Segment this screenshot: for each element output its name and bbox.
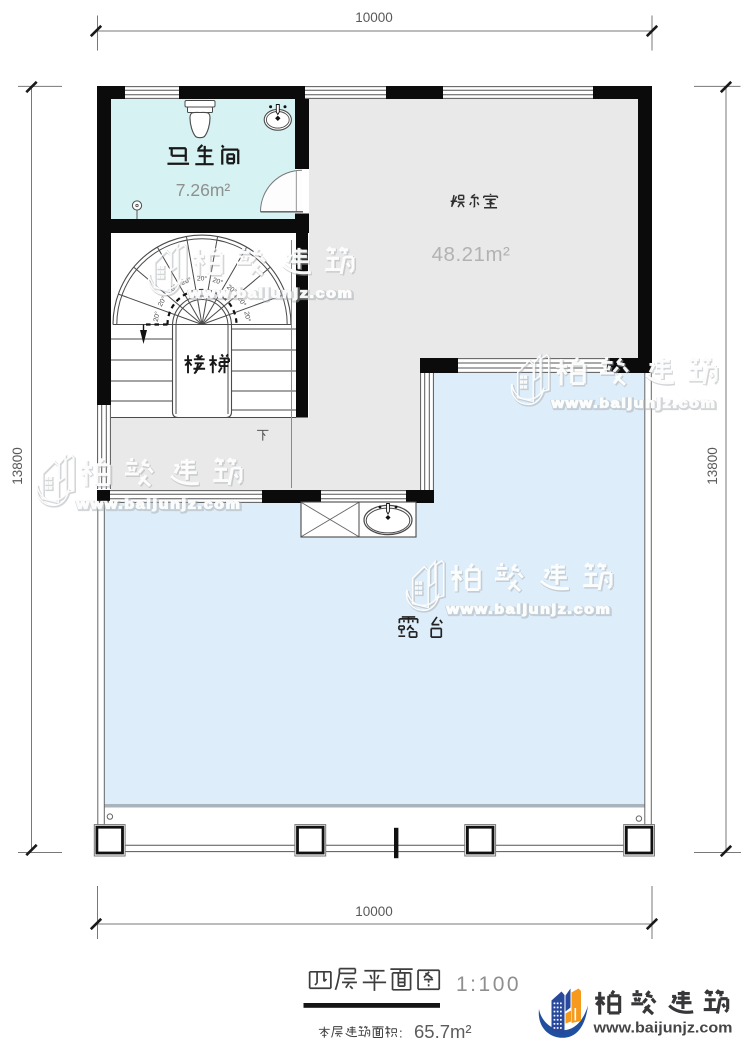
svg-text:www.baijunjz.com: www.baijunjz.com xyxy=(75,497,241,511)
svg-text:10000: 10000 xyxy=(355,10,393,25)
svg-text:www.baijunjz.com: www.baijunjz.com xyxy=(550,396,716,410)
svg-text:65.7m²: 65.7m² xyxy=(414,1021,472,1042)
svg-text:13800: 13800 xyxy=(705,447,720,485)
svg-text::: : xyxy=(399,1026,403,1041)
svg-text:48.21m²: 48.21m² xyxy=(432,243,511,266)
svg-text:www.baijunjz.com: www.baijunjz.com xyxy=(592,1021,732,1037)
svg-text:www.baijunjz.com: www.baijunjz.com xyxy=(445,602,611,616)
svg-text:www.baijunjz.com: www.baijunjz.com xyxy=(187,286,353,300)
svg-text:7.26m²: 7.26m² xyxy=(176,180,231,200)
svg-text:10000: 10000 xyxy=(355,904,393,919)
svg-text:13800: 13800 xyxy=(10,447,25,485)
svg-text:1:100: 1:100 xyxy=(456,973,521,996)
